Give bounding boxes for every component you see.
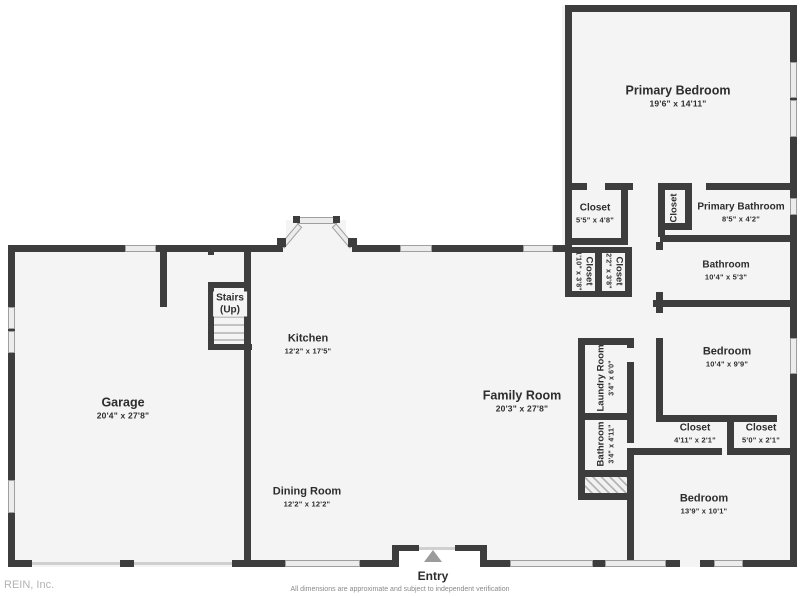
wall-segment [627, 362, 634, 420]
room-label-bedroom-2: Bedroom10'4" x 9'9" [703, 346, 751, 369]
wall-segment [8, 245, 15, 567]
hatched-area [585, 477, 627, 493]
stair-tread [214, 332, 244, 334]
wall-segment [656, 292, 663, 307]
wall-segment [120, 560, 134, 567]
room-label-bathroom-2: Bathroom3'4" x 4'11" [597, 422, 616, 467]
room-label-dining-room: Dining Room12'2" x 12'2" [273, 486, 341, 509]
room-label-closet-small-2: Closet2'2" x 3'8" [605, 253, 624, 289]
stair-tread [214, 324, 244, 326]
window [790, 100, 797, 137]
wall-segment [660, 235, 797, 242]
wall-segment [293, 216, 300, 223]
wall-segment [578, 470, 634, 477]
wall-segment [156, 245, 283, 252]
wall-segment [734, 448, 790, 455]
disclaimer-text: All dimensions are approximate and subje… [0, 586, 800, 593]
wall-segment [578, 413, 585, 500]
wall-segment [627, 448, 722, 455]
window [8, 331, 15, 353]
wall-segment [658, 223, 692, 230]
wall-segment [593, 560, 605, 567]
wall-segment [432, 245, 523, 252]
room-label-closet-bed3-2: Closet5'0" x 2'1" [742, 422, 780, 444]
window [400, 245, 432, 252]
window [523, 245, 553, 252]
window [285, 560, 360, 567]
wall-segment [790, 190, 797, 567]
wall-segment [578, 413, 634, 420]
wall-segment [700, 560, 714, 567]
wall-segment [565, 247, 572, 297]
room-label-laundry-room: Laundry Room3'4" x 6'0" [597, 344, 616, 411]
wall-segment [621, 190, 628, 245]
entry-label: Entry [418, 569, 449, 583]
wall-segment [565, 238, 628, 245]
room-label-garage: Garage20'4" x 27'8" [97, 395, 150, 420]
window [8, 307, 15, 329]
room-label-primary-bathroom: Primary Bathroom8'5" x 4'2" [697, 201, 784, 223]
wall-segment [160, 245, 167, 307]
stair-tread [214, 339, 244, 341]
window [510, 560, 593, 567]
window [8, 480, 15, 513]
room-label-family-room: Family Room20'3" x 27'8" [483, 388, 562, 413]
room-label-kitchen: Kitchen12'2" x 17'5" [285, 333, 332, 356]
window [125, 245, 156, 252]
wall-segment [208, 282, 250, 288]
wall-segment [333, 216, 340, 223]
room-label-primary-bedroom: Primary Bedroom19'6" x 14'11" [626, 83, 731, 108]
wall-segment [653, 300, 797, 307]
wall-segment [565, 5, 572, 252]
entry-arrow-icon [424, 550, 442, 562]
wall-segment [247, 560, 285, 567]
wall-segment [578, 493, 634, 500]
wall-segment [565, 5, 797, 12]
floor-plan: Primary Bedroom19'6" x 14'11" Closet5'5"… [0, 0, 800, 596]
room-label-closet-primary: Closet5'5" x 4'8" [576, 202, 614, 224]
wall-segment [727, 415, 734, 455]
wall-segment [658, 183, 692, 190]
wall-segment [656, 415, 777, 422]
wall-segment [656, 307, 663, 313]
wall-segment [578, 338, 585, 420]
wall-segment [627, 420, 634, 443]
wall-segment [565, 183, 587, 190]
wall-segment [455, 545, 487, 551]
wall-segment [743, 560, 797, 567]
room-label-bathroom-hall: Bathroom10'4" x 5'3" [702, 259, 749, 281]
wall-segment [656, 242, 663, 250]
window [790, 198, 797, 215]
room-label-closet-hall: Closet [670, 193, 681, 222]
wall-segment [208, 245, 214, 255]
wall-segment [8, 560, 32, 567]
wall-segment [277, 238, 286, 247]
wall-segment [392, 545, 419, 551]
wall-segment [352, 245, 400, 252]
garage-door [134, 562, 232, 565]
window [790, 62, 797, 98]
room-label-closet-bed3-1: Closet4'11" x 2'1" [674, 422, 716, 444]
window [714, 560, 743, 567]
wall-segment [208, 344, 252, 350]
wall-segment [348, 238, 357, 247]
room-label-closet-small-1: Closet1'10" x 3'8" [575, 251, 594, 291]
wall-segment [627, 338, 634, 348]
wall-segment [790, 5, 797, 192]
garage-door [32, 562, 120, 565]
wall-segment [8, 245, 125, 252]
wall-segment [595, 247, 602, 297]
wall-segment [605, 183, 633, 190]
wall-segment [625, 247, 632, 297]
wall-segment [553, 245, 572, 252]
wall-segment [706, 183, 797, 190]
bay-window-pane [297, 217, 337, 224]
room-label-bedroom-3: Bedroom13'9" x 10'1" [680, 493, 728, 516]
wall-segment [666, 560, 680, 567]
wall-segment [656, 338, 663, 422]
room-label-stairs: Stairs(Up) [213, 292, 247, 317]
window [605, 560, 666, 567]
window [790, 338, 797, 374]
